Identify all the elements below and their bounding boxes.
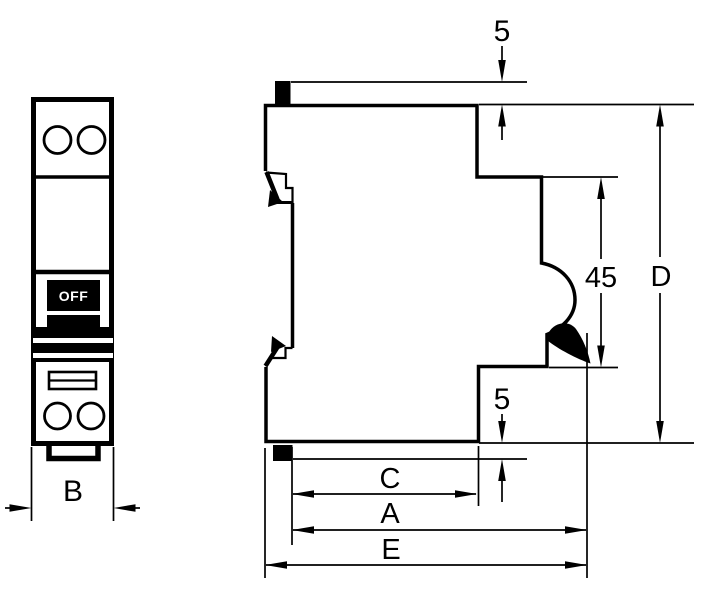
side-body-outline: [266, 106, 576, 442]
front-view: OFF: [33, 100, 113, 459]
dim-bottom-5-arrow-up: [498, 459, 506, 481]
dim-c: C: [292, 463, 477, 498]
dim-top-5-arrow-down: [498, 60, 506, 82]
front-bottom-tab: [49, 446, 98, 459]
dim-a-arrow-left: [292, 526, 314, 534]
dim-d-arrow-down: [656, 421, 664, 443]
dim-e-arrow-right: [565, 561, 587, 569]
dim-a-arrow-right: [565, 526, 587, 534]
dim-c-label: C: [380, 463, 401, 495]
dim-d: D: [651, 105, 672, 444]
dim-45-arrow-down: [597, 346, 605, 368]
dim-c-arrow-left: [292, 490, 314, 498]
dim-top-5: 5: [494, 15, 511, 140]
dim-top-5-arrow-up: [498, 105, 506, 127]
side-latch-lever: [548, 323, 591, 363]
dim-b-label: B: [63, 475, 83, 508]
dim-top-5-label: 5: [494, 15, 511, 48]
drawing-page: OFF: [0, 0, 714, 614]
front-toggle-slot-bar: [47, 315, 100, 327]
side-rail-clip: [273, 445, 293, 461]
dim-bottom-5-arrow-down: [498, 421, 506, 443]
front-band-stripe-upper: [33, 338, 113, 343]
dim-b-arrow-right-pointing: [10, 504, 32, 512]
front-top-terminal-screw-right: [78, 127, 105, 154]
side-view: [266, 81, 591, 461]
dim-b-arrow-left-pointing: [114, 504, 136, 512]
front-bottom-terminal-screw-right: [78, 403, 104, 429]
dim-45-label: 45: [585, 262, 617, 294]
dim-e-arrow-left: [265, 561, 287, 569]
dim-e-label: E: [381, 534, 400, 566]
front-switch-label: OFF: [59, 288, 89, 304]
front-top-terminal-screw-left: [44, 127, 71, 154]
front-bottom-terminal-screw-left: [45, 403, 71, 429]
front-band-stripe-lower: [33, 353, 113, 358]
dim-c-arrow-right: [455, 490, 477, 498]
dim-e: E: [265, 534, 587, 569]
dim-45-arrow-up: [597, 177, 605, 199]
mcb-dimension-drawing: OFF: [0, 0, 714, 614]
side-toggle-handle: [275, 81, 291, 104]
dim-a-label: A: [380, 498, 400, 530]
dim-a: A: [292, 498, 587, 534]
dim-45: 45: [585, 177, 617, 368]
dim-bottom-5-label: 5: [494, 383, 511, 416]
dim-d-label: D: [651, 261, 672, 293]
